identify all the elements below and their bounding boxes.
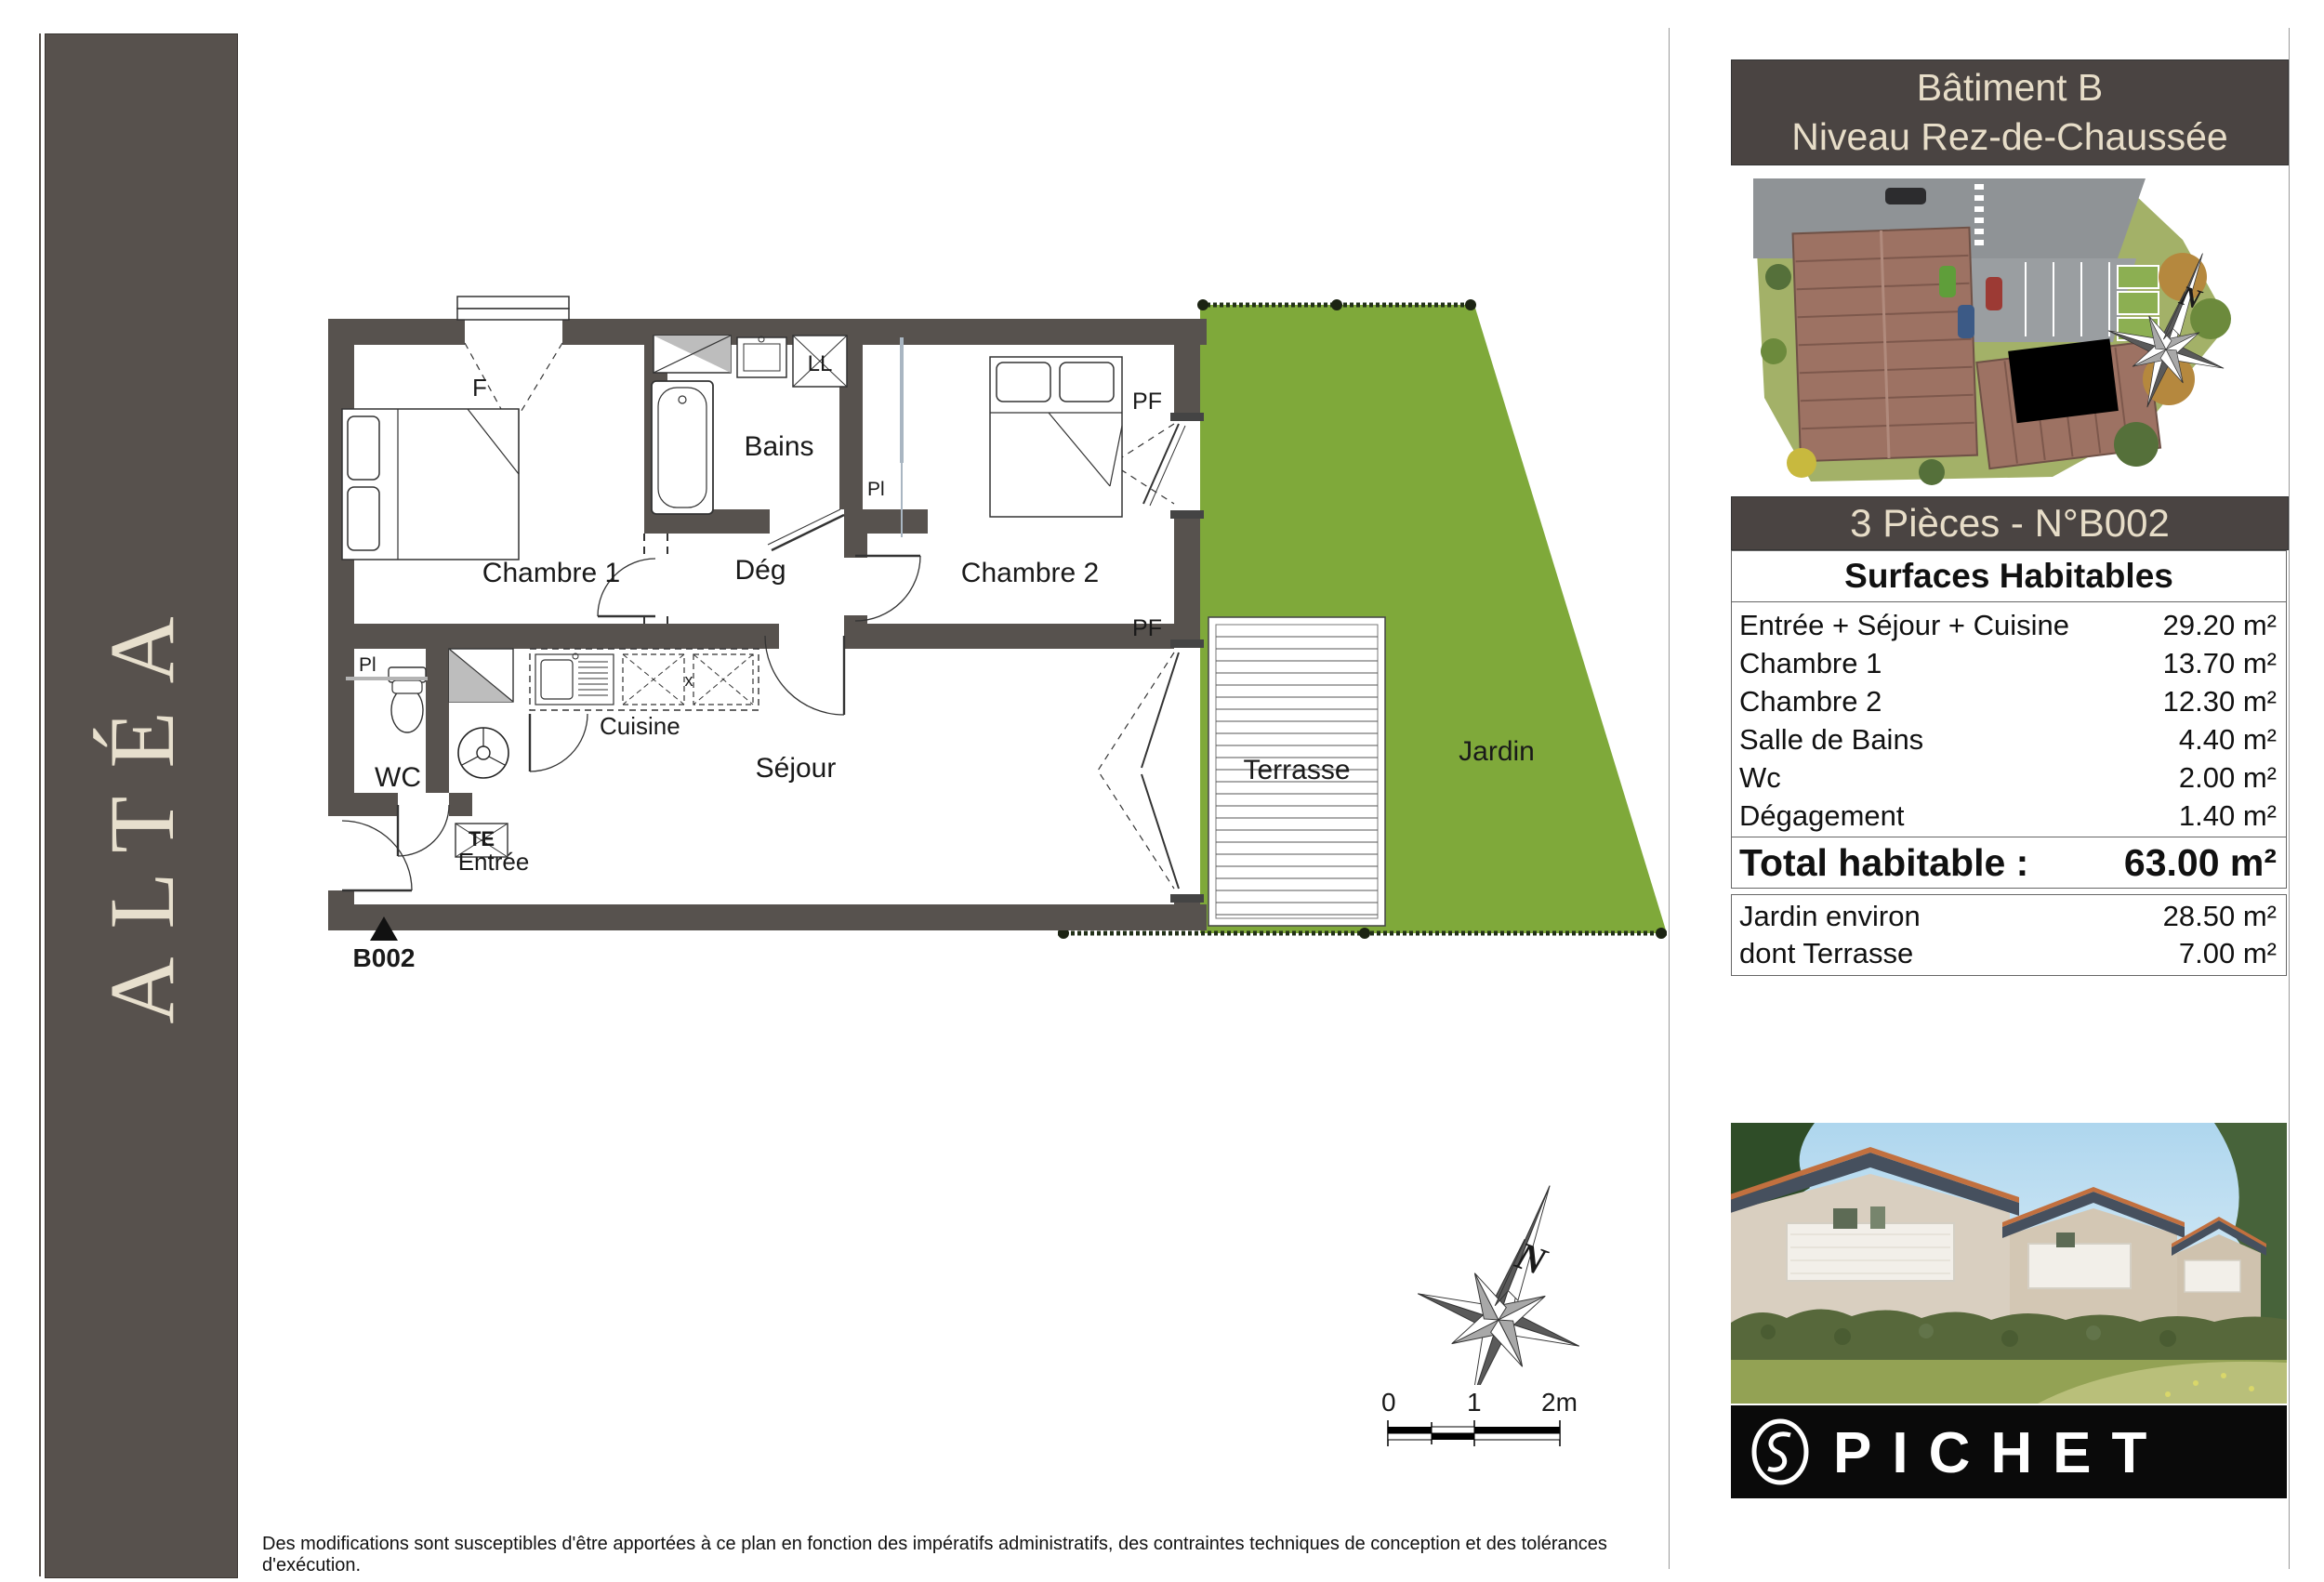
table-row: Jardin environ28.50 m² [1732,898,2286,935]
level-name: Niveau Rez-de-Chaussée [1791,112,2227,162]
label-window-f: F [472,374,487,402]
table-row: Chambre 212.30 m² [1732,682,2286,720]
row-value: 13.70 m² [2163,644,2277,682]
pichet-wordmark: PICHET [1833,1420,2167,1486]
kitchen-counter: x [530,649,759,710]
room-label-cuisine: Cuisine [600,712,680,740]
site-building-a [1793,228,1977,461]
total-row: Total habitable : 63.00 m² [1732,837,2286,888]
table-row: Entrée + Séjour + Cuisine29.20 m² [1732,606,2286,644]
bed-chambre2 [990,357,1122,517]
table-row: Salle de Bains4.40 m² [1732,720,2286,758]
unit-title: 3 Pièces - N°B002 [1850,501,2170,546]
washbasin [737,337,786,377]
divider-right [2289,28,2290,1569]
row-value: 29.20 m² [2163,606,2277,644]
table-row: Chambre 113.70 m² [1732,644,2286,682]
label-pl2: Pl [867,479,885,500]
room-label-wc: WC [375,762,421,793]
building-name: Bâtiment B [1917,63,2104,112]
floor-plan: Terrasse Jardin [258,296,1681,974]
site-plan: N [1746,165,2289,491]
compass-rose: N [1394,1153,1608,1385]
total-value: 63.00 m² [2124,841,2277,885]
row-label: Chambre 2 [1739,682,1882,720]
label-pf1: PF [1132,389,1162,415]
svg-text:x: x [685,671,693,690]
row-label: dont Terrasse [1739,935,1913,972]
floorplan-sheet: ALTÉA [0,0,2324,1582]
row-label: Chambre 1 [1739,644,1882,682]
scale-0: 0 [1381,1388,1396,1417]
window-f [457,297,569,428]
room-label-deg: Dég [734,555,786,586]
project-rendering [1731,1123,2287,1404]
row-label: Jardin environ [1739,898,1921,935]
row-value: 4.40 m² [2179,720,2277,758]
window-pf1 [1112,413,1204,519]
balcony-1 [1787,1223,1954,1281]
room-label-chambre2: Chambre 2 [961,558,1099,588]
disclaimer-text: Des modifications sont susceptibles d'êt… [262,1534,1657,1576]
room-label-jardin: Jardin [1459,736,1535,767]
unit-title-bar: 3 Pièces - N°B002 [1731,496,2289,550]
surfaces-table: Surfaces Habitables Entrée + Séjour + Cu… [1731,550,2287,889]
bathtub [652,381,713,514]
row-label: Wc [1739,758,1781,797]
project-name: ALTÉA [88,588,195,1024]
row-value: 1.40 m² [2179,797,2277,835]
row-value: 7.00 m² [2179,935,2277,972]
row-value: 2.00 m² [2179,758,2277,797]
scale-bar: 0 1 2m [1367,1385,1590,1459]
surfaces-title: Surfaces Habitables [1732,551,2286,602]
balcony-3 [2185,1260,2240,1292]
room-label-bains: Bains [744,431,813,462]
toilet-bowl [391,688,423,732]
pichet-logo: PICHET [1731,1405,2287,1498]
row-value: 28.50 m² [2163,898,2277,935]
label-ll: LL [808,351,833,376]
room-label-terrasse: Terrasse [1243,755,1350,785]
row-value: 12.30 m² [2163,682,2277,720]
table-row: dont Terrasse7.00 m² [1732,935,2286,972]
row-label: Entrée + Séjour + Cuisine [1739,606,2069,644]
total-label: Total habitable : [1739,841,2028,885]
floor-plan-svg: Terrasse Jardin [258,296,1681,974]
room-label-entree: Entrée [458,848,530,876]
table-row: Dégagement1.40 m² [1732,797,2286,835]
bains-door-leaf [772,515,844,550]
label-pl1: Pl [359,654,376,676]
scale-1: 1 [1467,1388,1482,1417]
brand-sidebar: ALTÉA [45,33,238,1578]
sidebar-accent-line [39,33,41,1576]
dashed-partition [644,534,667,624]
bed-chambre1 [342,409,519,560]
lawn [1731,1360,2287,1404]
scale-2m: 2m [1541,1388,1578,1417]
row-label: Dégagement [1739,797,1905,835]
row-label: Salle de Bains [1739,720,1923,758]
balcony-2 [2028,1244,2131,1288]
duct-shaft-kitchen [449,649,513,702]
building-header: Bâtiment B Niveau Rez-de-Chaussée [1731,59,2289,165]
label-unit-ref: B002 [353,943,416,972]
label-pf2: PF [1132,615,1162,641]
pichet-emblem-icon [1744,1415,1816,1489]
window-pf2 [1098,639,1204,903]
table-row: Wc2.00 m² [1732,758,2286,797]
site-highlight-b002 [2008,338,2119,423]
outdoor-table: Jardin environ28.50 m² dont Terrasse7.00… [1731,894,2287,976]
room-label-chambre1: Chambre 1 [482,558,620,588]
room-label-sejour: Séjour [756,753,837,784]
